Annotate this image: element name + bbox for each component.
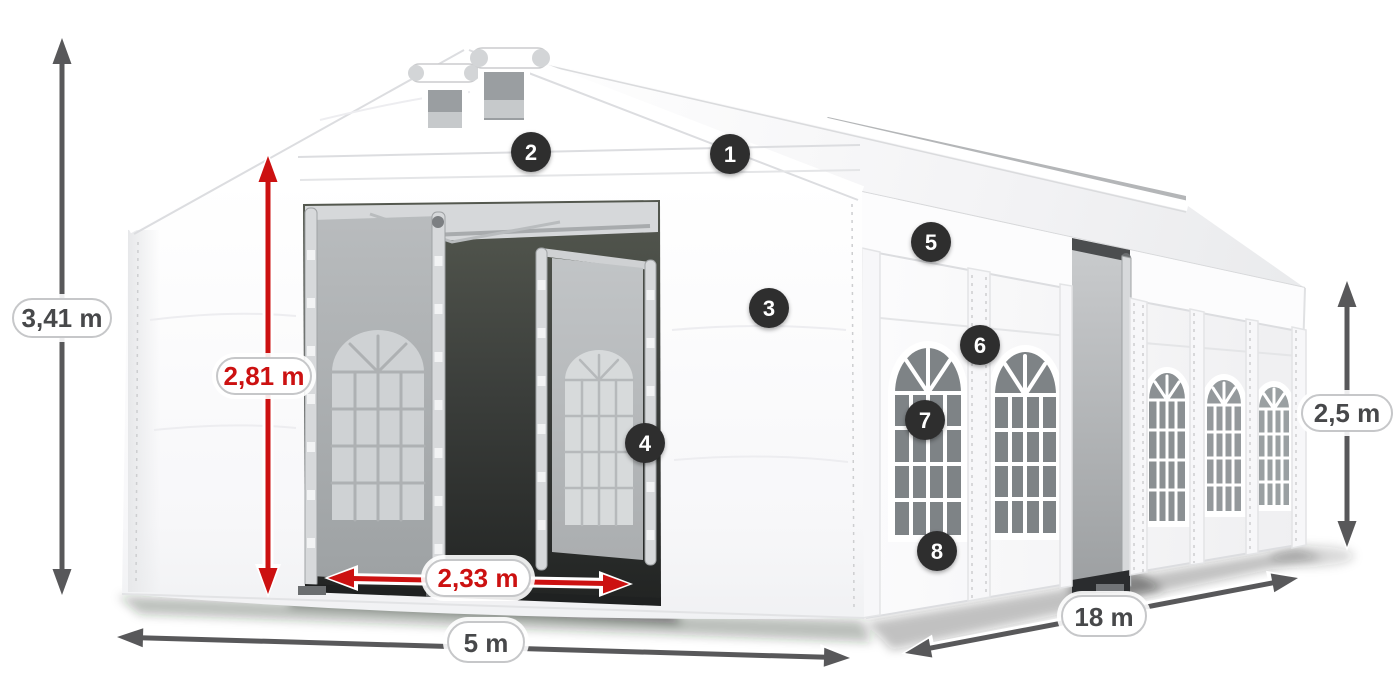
callout-badge-5-number: 5 xyxy=(925,230,937,255)
side-door-opening xyxy=(1072,238,1131,594)
dimension-label-entrance-height: 2,81 m xyxy=(212,353,316,399)
callout-badge-3[interactable]: 3 xyxy=(749,288,789,328)
callout-badge-8-number: 8 xyxy=(931,539,943,564)
callout-badge-7[interactable]: 7 xyxy=(905,400,945,440)
side-window-3 xyxy=(1143,367,1191,527)
front-width-value: 5 m xyxy=(464,628,509,658)
entrance-width-value: 2,33 m xyxy=(438,563,519,593)
callout-badge-4-number: 4 xyxy=(639,431,652,456)
dimension-label-side-length: 18 m xyxy=(1057,591,1151,641)
side-door-base-plate xyxy=(1096,584,1124,592)
dimension-label-total-height: 3,41 m xyxy=(8,294,116,342)
callout-badge-8[interactable]: 8 xyxy=(917,531,957,571)
roof-vent-2-roll xyxy=(470,48,550,68)
side-window-5 xyxy=(1253,381,1295,511)
dimension-label-side-height: 2,5 m xyxy=(1297,390,1397,436)
side-height-value: 2,5 m xyxy=(1314,398,1381,428)
entrance-height-value: 2,81 m xyxy=(224,361,305,391)
callout-badge-2[interactable]: 2 xyxy=(511,132,551,172)
side-window-1 xyxy=(888,341,968,542)
side-window-2 xyxy=(988,345,1063,540)
callout-badge-4[interactable]: 4 xyxy=(625,423,665,463)
figure-canvas: 3,41 m 2,81 m 2,33 m 5 m 18 m 2,5 m 1 2 … xyxy=(0,0,1400,700)
pole-clamp-joint xyxy=(432,216,444,228)
callout-badge-1-number: 1 xyxy=(724,142,736,167)
front-left-edge-shade xyxy=(128,230,160,592)
dimension-label-front-width: 5 m xyxy=(443,617,529,667)
callout-badge-5[interactable]: 5 xyxy=(911,222,951,262)
callout-badge-2-number: 2 xyxy=(525,140,537,165)
dimension-label-entrance-width: 2,33 m xyxy=(421,555,535,601)
front-entrance-opening xyxy=(298,200,661,606)
callout-badge-6[interactable]: 6 xyxy=(960,325,1000,365)
side-length-value: 18 m xyxy=(1074,602,1133,632)
base-plate-left xyxy=(298,586,326,595)
total-height-value: 3,41 m xyxy=(22,303,103,333)
callout-badge-3-number: 3 xyxy=(763,296,775,321)
side-window-4 xyxy=(1201,374,1247,517)
partition-pole-right xyxy=(645,260,656,565)
callout-badge-1[interactable]: 1 xyxy=(710,134,750,174)
callout-badge-6-number: 6 xyxy=(974,333,986,358)
inner-partition-door xyxy=(536,248,656,570)
roof-vent-1-roll xyxy=(408,64,480,82)
callout-badge-7-number: 7 xyxy=(919,408,931,433)
entrance-door-panel-left xyxy=(312,216,440,584)
